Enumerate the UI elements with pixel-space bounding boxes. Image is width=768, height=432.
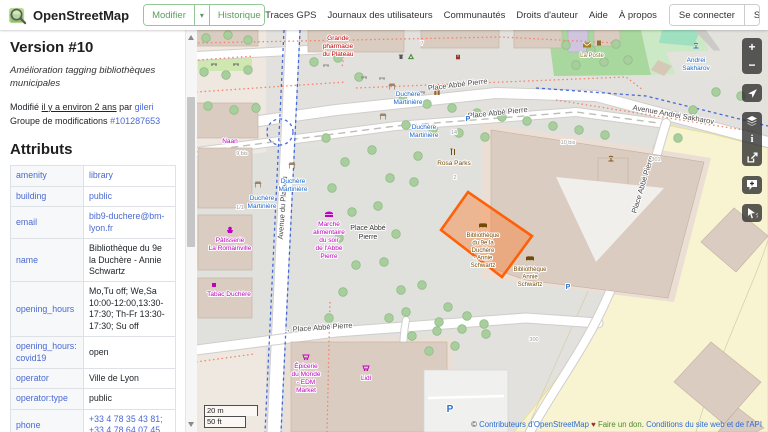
map-label: Duchère (281, 178, 306, 185)
edit-button-group: Modifier ▾ Historique Exporter (143, 4, 265, 26)
scrollbar-thumb[interactable] (187, 97, 195, 247)
changeset-link[interactable]: #101287653 (110, 116, 160, 126)
user-link[interactable]: gileri (135, 102, 154, 112)
header-nav-link-5[interactable]: À propos (619, 10, 657, 21)
app: OpenStreetMap Modifier ▾ Historique Expo… (0, 0, 768, 432)
map-label: Épicerie (294, 361, 318, 370)
tag-row: emailbib9-duchere@bm-lyon.fr (11, 207, 176, 239)
map-label: Bibliothèque (513, 267, 547, 273)
tag-table: amenitylibrarybuildingpublicemailbib9-du… (10, 165, 176, 432)
map-label: pharmacie (323, 43, 354, 50)
map-label: du Plateau (322, 51, 353, 58)
market-stall-icon (325, 212, 333, 218)
tag-row: operator:typepublic (11, 389, 176, 409)
tag-row: opening_hoursMo,Tu off; We,Sa 10:00-12:0… (11, 282, 176, 337)
map-key-button[interactable]: i (742, 130, 762, 148)
map-label: Martinière (394, 99, 423, 106)
sidebar: Version #10 Amélioration tagging bibliot… (0, 30, 185, 432)
map-label: 10 bis (561, 140, 576, 146)
map-label: 1/1 (236, 205, 244, 211)
map-label: La Romainville (209, 245, 252, 252)
share-button[interactable] (742, 148, 762, 166)
tag-value: Mo,Tu off; We,Sa 10:00-12:00,13:30-17:30… (84, 282, 176, 337)
zoom-out-button[interactable]: − (742, 56, 762, 74)
map-attribution: © Contributeurs d'OpenStreetMap ♥ Faire … (471, 420, 762, 429)
map-label: Grande (327, 35, 349, 42)
map-label: Tabac Duchère (207, 291, 251, 298)
map-label: P (566, 284, 571, 291)
terms-link[interactable]: Conditions du site web et de l'API (646, 420, 762, 429)
scroll-up-icon[interactable] (188, 35, 194, 40)
map-area[interactable]: Place Abbé PierreAvenue Andrei SakharovP… (196, 30, 768, 432)
auth-button-group: Se connecter S'inscrire (669, 4, 760, 26)
map-label: Martinière (410, 132, 439, 139)
map-label: 2 (453, 175, 456, 181)
map-label: 7 (420, 41, 423, 47)
tag-value: open (84, 337, 176, 369)
header-nav: Traces GPSJournaux des utilisateursCommu… (265, 10, 657, 21)
map-label: 300 (529, 337, 538, 343)
add-note-button[interactable] (742, 176, 762, 194)
tag-key-link[interactable]: operator (16, 373, 49, 383)
changeset-label: Groupe de modifications (10, 116, 108, 126)
map-label: du Monde (292, 371, 321, 378)
map-label: Place Abbé (350, 225, 386, 232)
donate-link[interactable]: Faire un don (598, 420, 642, 429)
tag-key-link[interactable]: amenity (16, 170, 47, 180)
map-label: Martinière (279, 186, 308, 193)
map-label: Martinière (248, 203, 277, 210)
login-button[interactable]: Se connecter (670, 5, 745, 25)
contributors-link[interactable]: Contributeurs d'OpenStreetMap (479, 420, 589, 429)
edited-by: par (119, 102, 132, 112)
header-nav-link-3[interactable]: Droits d'auteur (516, 10, 577, 21)
map-label: - EDM (297, 379, 315, 386)
map-label: P (466, 116, 471, 123)
edit-meta: Modifié il y a environ 2 ans par gileri … (10, 101, 175, 129)
version-title: Version #10 (10, 39, 175, 56)
history-button[interactable]: Historique (210, 5, 265, 25)
tag-key-link[interactable]: name (16, 255, 38, 265)
map-label: Annie (522, 275, 538, 281)
tag-key-link[interactable]: opening_hours (16, 304, 74, 314)
library-book-icon (479, 223, 487, 228)
attributes-heading: Attributs (10, 141, 175, 158)
mail-icon (583, 43, 591, 48)
map-label: 301 (651, 157, 660, 163)
top-navbar: OpenStreetMap Modifier ▾ Historique Expo… (0, 0, 768, 30)
edited-time: il y a environ 2 ans (42, 102, 117, 112)
tag-row: opening_hours:covid19open (11, 337, 176, 369)
tag-value: public (84, 389, 176, 409)
tag-key-link[interactable]: operator:type (16, 393, 68, 403)
map-label: La Poste (580, 53, 604, 59)
tag-key-link[interactable]: building (16, 191, 46, 201)
map-label: Bibliothèque (466, 233, 500, 239)
tag-row: phone+33 4 78 35 43 81; +33 4 78 64 07 4… (11, 409, 176, 432)
map-label: Pierre (320, 253, 338, 260)
tag-value-link[interactable]: +33 4 78 35 43 81; +33 4 78 64 07 45 (89, 414, 163, 432)
signup-button[interactable]: S'inscrire (745, 5, 760, 25)
map-label: 9 bis (236, 151, 248, 157)
tag-row: buildingpublic (11, 186, 176, 206)
scale-metric: 20 m (204, 405, 258, 416)
edit-button[interactable]: Modifier (144, 5, 195, 25)
edited-prefix: Modifié (10, 102, 39, 112)
map-label: Pierre (359, 234, 378, 241)
header-nav-link-0[interactable]: Traces GPS (265, 10, 316, 21)
scale-bar: 20 m 50 ft (204, 405, 258, 428)
map-label: Andrei (687, 57, 706, 64)
tag-key-link[interactable]: opening_hours:covid19 (16, 341, 77, 362)
sidebar-scrollbar[interactable] (185, 30, 197, 432)
map-label: Schwartz (518, 282, 543, 288)
map-label: 14 (451, 130, 457, 136)
map-label: Duchère (412, 124, 437, 131)
post-box-icon (597, 41, 601, 46)
map-label: du 9e la (472, 241, 494, 247)
map-label: Marché (318, 221, 340, 228)
tag-row: nameBibliothèque du 9e la Duchère - Anni… (11, 239, 176, 282)
vending-icon (456, 55, 460, 60)
header-nav-link-2[interactable]: Communautés (444, 10, 506, 21)
map-label: Duchère (250, 195, 275, 202)
tag-value: Bibliothèque du 9e la Duchère - Annie Sc… (84, 239, 176, 282)
svg-text:?: ? (756, 214, 759, 219)
query-features-button[interactable]: ? (742, 204, 762, 222)
tag-value-link[interactable]: public (89, 191, 112, 201)
map-label: Market (296, 387, 316, 394)
tag-value-link[interactable]: library (89, 170, 113, 180)
map-label: Rosa Parks (437, 160, 471, 167)
brand-title: OpenStreetMap (33, 8, 129, 23)
tag-key-link[interactable]: phone (16, 420, 40, 430)
map-label: P (447, 404, 454, 415)
layers-button[interactable] (742, 112, 762, 130)
map-label: Duchère (396, 91, 421, 98)
map-canvas[interactable]: Place Abbé PierreAvenue Andrei SakharovP… (196, 30, 768, 432)
tobacco-icon (212, 283, 216, 287)
scroll-down-icon[interactable] (188, 422, 194, 427)
map-label: Schwartz (471, 263, 496, 269)
osm-logo-icon (8, 6, 27, 25)
copyright-symbol: © (471, 420, 477, 429)
tag-key-link[interactable]: email (16, 217, 37, 227)
scale-imperial: 50 ft (204, 416, 246, 428)
locate-button[interactable] (742, 84, 762, 102)
library-book-icon (526, 256, 534, 261)
map-label: Pâtisserie (216, 237, 245, 244)
tag-value-link[interactable]: bib9-duchere@bm-lyon.fr (89, 211, 164, 232)
map-label: Sakharov (682, 65, 710, 72)
header-nav-link-1[interactable]: Journaux des utilisateurs (328, 10, 433, 21)
map-label: Naan (222, 138, 238, 145)
edit-dropdown-caret[interactable]: ▾ (195, 5, 210, 25)
map-label: de l'Abbé (316, 245, 343, 252)
header-nav-link-4[interactable]: Aide (589, 10, 608, 21)
map-label: - Annie (474, 256, 493, 262)
map-label: Lidl (361, 375, 372, 382)
map-label: du soir (319, 237, 339, 244)
zoom-in-button[interactable]: + (742, 38, 762, 56)
map-label: Duchère (472, 248, 495, 254)
tag-row: amenitylibrary (11, 166, 176, 186)
tag-value: Ville de Lyon (84, 368, 176, 388)
changeset-comment: Amélioration tagging bibliothèques munic… (10, 64, 175, 91)
tag-row: operatorVille de Lyon (11, 368, 176, 388)
map-label: alimentaire (313, 229, 345, 236)
heart-icon: ♥ (591, 420, 596, 429)
